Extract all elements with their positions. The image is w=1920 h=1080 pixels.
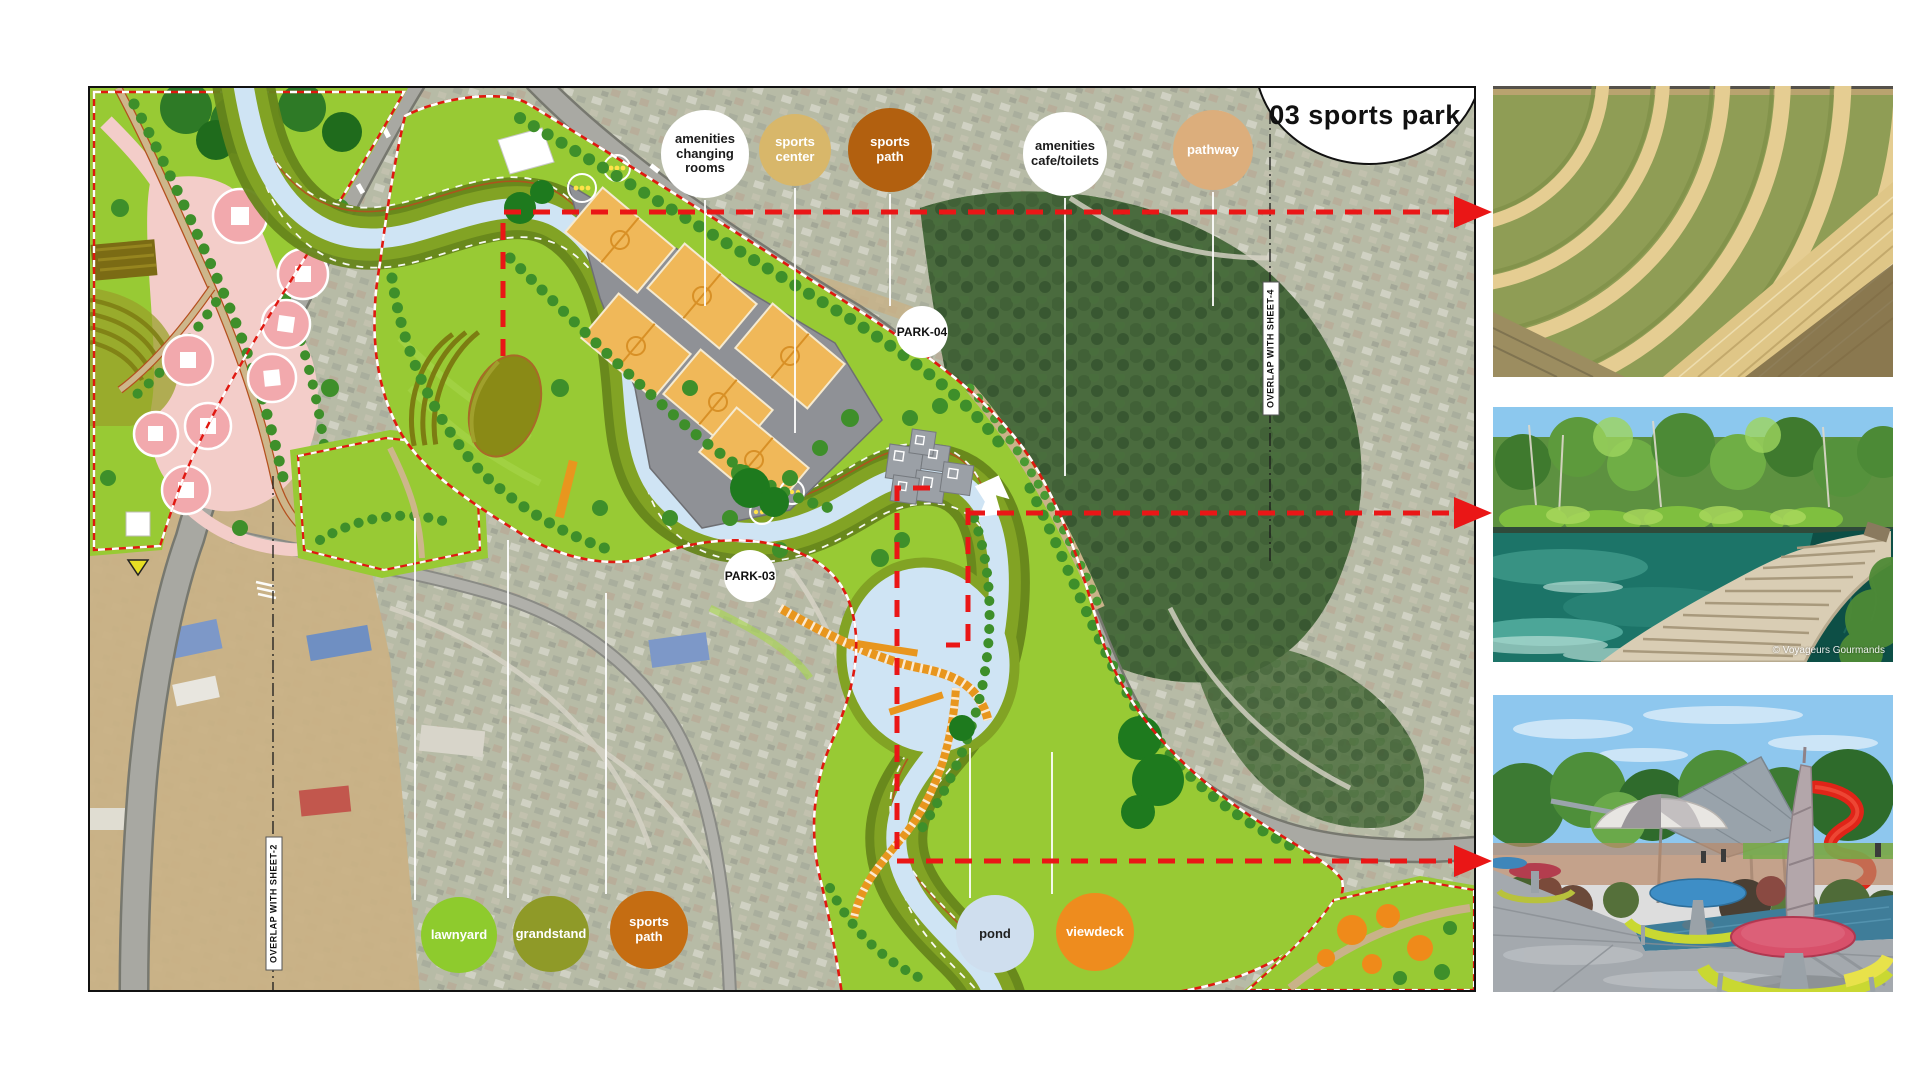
legend-bubble-pond: pond [956, 895, 1034, 973]
page-title: 03 sports park [1254, 100, 1476, 131]
marker-park-04: PARK-04 [896, 306, 948, 358]
legend-bubble-sports-path-bottom: sports path [610, 891, 688, 969]
legend-bubble-pathway: pathway [1173, 110, 1253, 190]
overlap-label-sheet-4: OVERLAP WITH SHEET-4 [1263, 282, 1280, 416]
legend-bubble-sports-center: sports center [759, 114, 831, 186]
legend-bubble-lawnyard: lawnyard [421, 897, 497, 973]
site-plan: 03 sports park amenities changing rooms … [88, 86, 1476, 992]
legend-label: pond [979, 927, 1011, 942]
marker-label: PARK-03 [725, 569, 775, 583]
legend-bubble-grandstand: grandstand [513, 896, 589, 972]
reference-photo-picnic-terrace [1493, 695, 1893, 992]
legend-label: lawnyard [431, 928, 487, 943]
reference-photo-boardwalk: © Voyageurs Gourmands [1493, 407, 1893, 662]
marker-park-03: PARK-03 [724, 550, 776, 602]
legend-bubble-viewdeck: viewdeck [1056, 893, 1134, 971]
photo-watermark: © Voyageurs Gourmands [1773, 645, 1885, 656]
site-plan-map [90, 88, 1476, 992]
legend-label: viewdeck [1066, 925, 1124, 940]
overlap-label-sheet-2: OVERLAP WITH SHEET-2 [266, 837, 283, 971]
masterplan-board: 03 sports park amenities changing rooms … [0, 0, 1920, 1080]
legend-label: sports path [870, 135, 910, 165]
legend-bubble-amenities-cafe-toilets: amenities cafe/toilets [1023, 112, 1107, 196]
legend-label: sports center [775, 135, 815, 165]
marker-label: PARK-04 [897, 325, 947, 339]
legend-bubble-amenities-changing-rooms: amenities changing rooms [661, 110, 749, 198]
reference-photo-amphitheater [1493, 86, 1893, 377]
legend-label: amenities cafe/toilets [1031, 139, 1099, 169]
legend-bubble-sports-path-top: sports path [848, 108, 932, 192]
legend-label: pathway [1187, 143, 1239, 158]
legend-label: sports path [629, 915, 669, 945]
legend-label: grandstand [516, 927, 587, 942]
pavilion [126, 512, 150, 536]
legend-label: amenities changing rooms [675, 132, 735, 177]
